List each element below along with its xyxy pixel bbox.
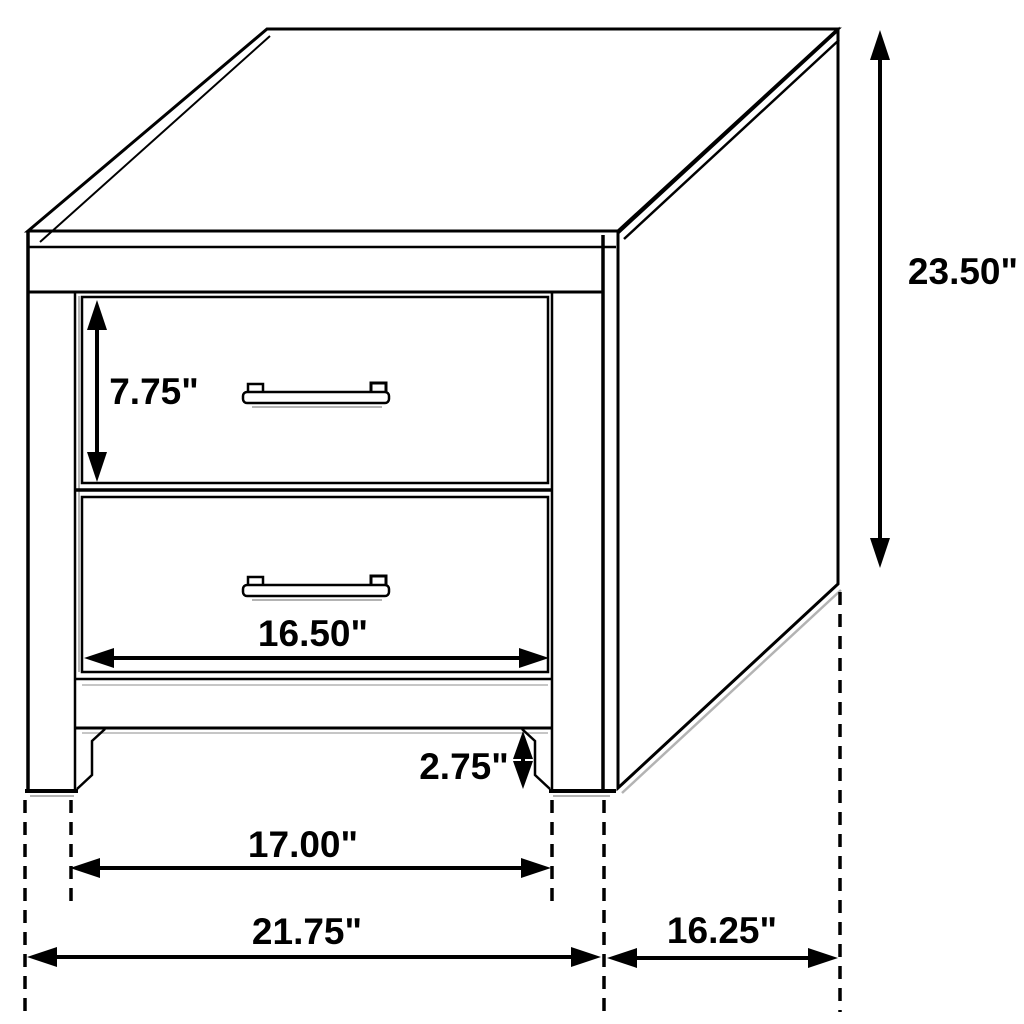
dim-label-drawer-front-width: 16.50" [258,613,368,654]
diagram-canvas: 23.50" 7.75" 16.50" 2.75" 17.00" [0,0,1024,1024]
arrowhead-down [870,538,890,568]
arrowhead-left [70,858,100,878]
arrowhead-left [607,948,637,968]
dim-label-inner-leg-span: 17.00" [248,824,358,865]
arrowhead-right [571,947,601,967]
dim-overall-width: 21.75" [27,911,601,967]
arrowhead-up [870,30,890,60]
dim-label-base-clearance: 2.75" [419,746,509,787]
dim-overall-height: 23.50" [870,30,1018,568]
dim-label-overall-height: 23.50" [908,251,1018,292]
arrowhead-down [513,761,533,789]
left-inner-foot [77,729,105,789]
handle-right-post [371,383,386,392]
handle-bar [243,392,389,403]
dim-label-overall-width: 21.75" [252,911,362,952]
arrowhead-left [27,947,57,967]
handle-bar [243,585,389,596]
arrowhead-right [521,858,551,878]
dim-base-clearance: 2.75" [419,731,533,789]
nightstand-dimension-diagram: 23.50" 7.75" 16.50" 2.75" 17.00" [0,0,1024,1024]
nightstand-drawing [25,29,841,796]
handle-right-post [371,576,386,585]
dim-side-depth: 16.25" [607,910,838,968]
dim-inner-leg-span: 17.00" [70,824,551,878]
arrowhead-right [808,948,838,968]
dim-label-side-depth: 16.25" [667,910,777,951]
dim-label-top-drawer-height: 7.75" [109,371,199,412]
